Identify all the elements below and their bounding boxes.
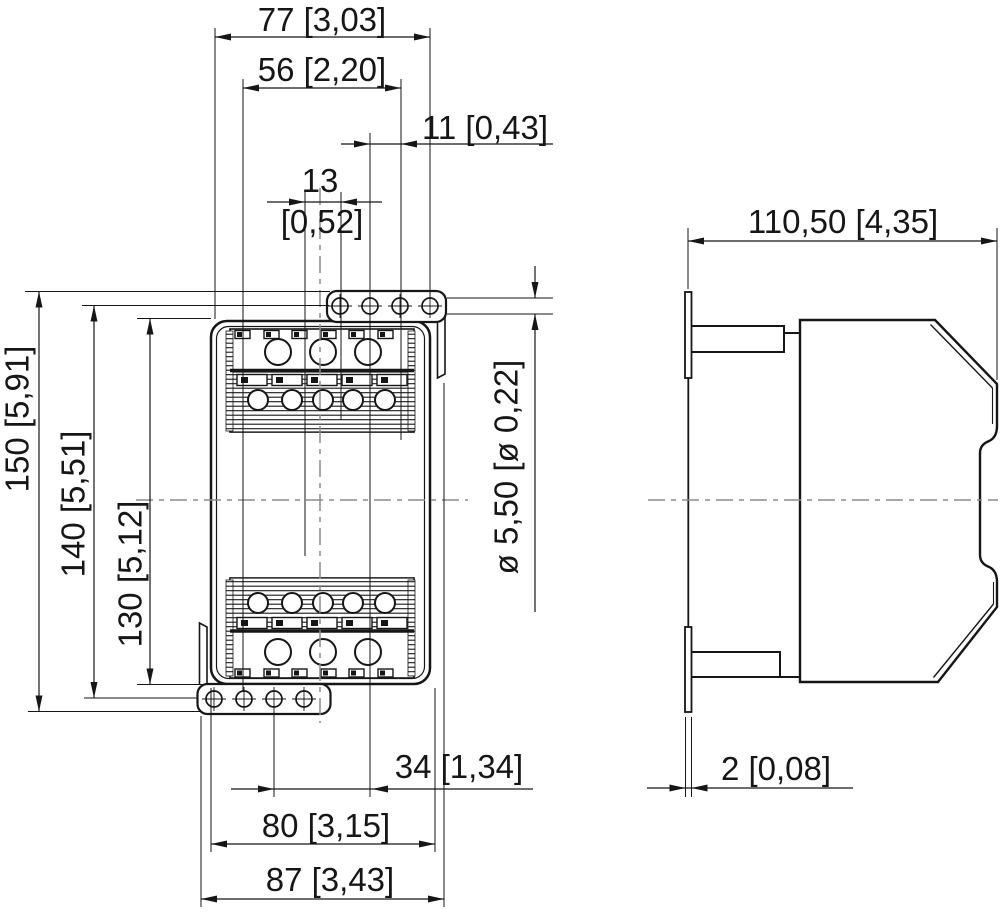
dim-label-upper-width: 56 [2,20] bbox=[258, 51, 386, 88]
top-tab-right-ear bbox=[438, 315, 446, 378]
dim-label-hole-rows-height: 140 [5,51] bbox=[55, 431, 92, 578]
lower-left-hatch-strip bbox=[226, 580, 233, 676]
dim-hole-offset: 13 [0,52] bbox=[267, 162, 382, 240]
lower-terminal-block bbox=[226, 578, 415, 678]
dim-lower-overall-width: 87 [3,43] bbox=[201, 861, 444, 903]
dim-overall-height: 150 [5,91] bbox=[0, 292, 43, 712]
technical-drawing: 77 [3,03] 56 [2,20] 11 [0,43] 13 [0,52] … bbox=[0, 0, 1000, 916]
dim-label-hole-offset-mm: 13 bbox=[302, 162, 339, 199]
side-body-outline bbox=[800, 320, 997, 682]
dim-top-width: 77 [3,03] bbox=[215, 1, 430, 41]
dim-label-lower-width: 80 [3,15] bbox=[262, 807, 390, 844]
dim-label-lower-offset: 34 [1,34] bbox=[395, 748, 523, 785]
side-bottom-tab bbox=[692, 652, 801, 677]
dim-label-hole-pitch: 11 [0,43] bbox=[422, 109, 548, 146]
upper-left-hatch-strip bbox=[226, 331, 233, 431]
dim-hole-diameter: ø 5,50 [ø 0,22] bbox=[488, 266, 539, 612]
dim-hole-pitch: 11 [0,43] bbox=[341, 109, 553, 148]
dim-depth: 110,50 [4,35] bbox=[688, 203, 997, 245]
lower-right-hatch-strip bbox=[408, 580, 415, 676]
lower-large-terminal-holes bbox=[265, 639, 381, 665]
side-flange-plate-bottom bbox=[685, 627, 692, 712]
dim-label-overall-height: 150 [5,91] bbox=[0, 346, 36, 493]
drawing-canvas: 77 [3,03] 56 [2,20] 11 [0,43] 13 [0,52] … bbox=[0, 0, 1000, 916]
dim-lower-offset: 34 [1,34] bbox=[231, 748, 533, 793]
dim-label-body-height: 130 [5,12] bbox=[112, 501, 149, 648]
front-view bbox=[198, 291, 447, 714]
dim-hole-rows-height: 140 [5,51] bbox=[55, 306, 98, 699]
bottom-tab-left-ear bbox=[200, 623, 208, 684]
dim-label-hole-offset-inch: [0,52] bbox=[281, 203, 364, 240]
side-flange-plate-top bbox=[685, 292, 692, 378]
dim-lower-width: 80 [3,15] bbox=[211, 807, 435, 848]
side-view bbox=[685, 292, 997, 712]
dim-body-height: 130 [5,12] bbox=[112, 319, 154, 685]
upper-right-hatch-strip bbox=[408, 331, 415, 431]
dim-label-top-width: 77 [3,03] bbox=[258, 1, 386, 38]
dim-label-hole-diameter: ø 5,50 [ø 0,22] bbox=[488, 360, 525, 575]
side-top-tab bbox=[692, 326, 801, 352]
dim-label-lower-overall-width: 87 [3,43] bbox=[266, 861, 394, 898]
dim-label-depth: 110,50 [4,35] bbox=[748, 203, 938, 240]
dim-upper-width: 56 [2,20] bbox=[243, 51, 401, 92]
upper-large-terminal-holes bbox=[265, 339, 381, 365]
dim-label-flange-thickness: 2 [0,08] bbox=[721, 750, 831, 787]
dim-flange-thickness: 2 [0,08] bbox=[647, 750, 853, 792]
